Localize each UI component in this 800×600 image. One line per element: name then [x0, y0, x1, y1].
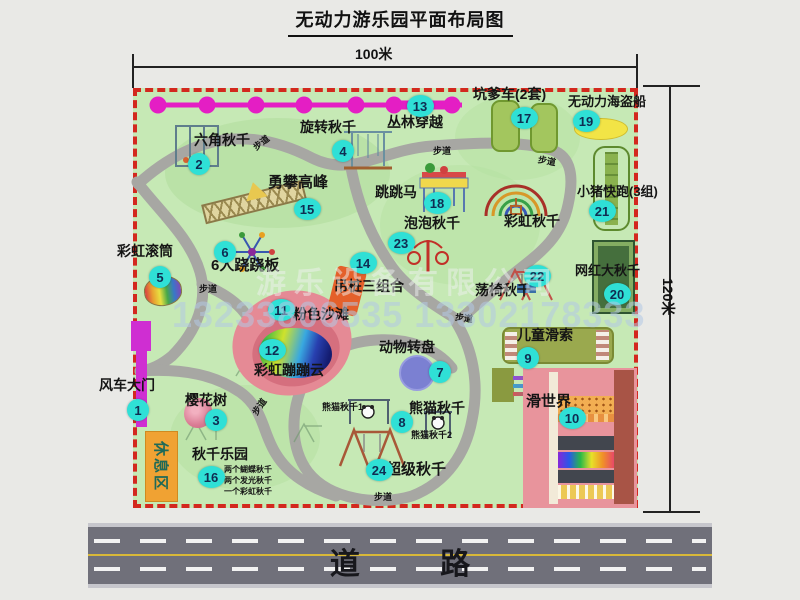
number-badge-17: 17	[511, 107, 538, 129]
map-label: 熊猫秋千	[409, 398, 465, 418]
map-label: 勇攀高峰	[268, 171, 328, 192]
map-label: 坑爹车(2套)	[473, 84, 546, 104]
map-label: 樱花树	[185, 390, 227, 410]
map-label: 两个发光秋千	[224, 475, 272, 486]
slide-world-right-strip	[614, 370, 634, 504]
park-layout-poster: 无动力游乐园平面布局图 100米 120米	[0, 0, 800, 600]
slide-world-stripe-rainbow	[558, 452, 614, 468]
number-badge-10: 10	[559, 407, 586, 429]
number-badge-7: 7	[429, 361, 451, 383]
number-badge-5: 5	[149, 266, 171, 288]
map-label: 步道	[374, 490, 392, 503]
map-label: 两个蝴蝶秋千	[224, 464, 272, 475]
slide-world-stripe-wavy	[558, 485, 614, 499]
map-label: 彩虹蹦蹦云	[254, 360, 324, 380]
map-label: 动物转盘	[379, 337, 435, 357]
number-badge-2: 2	[188, 153, 210, 175]
number-badge-4: 4	[332, 140, 354, 162]
map-label: 小猪快跑(3组)	[577, 181, 658, 200]
slide-world-stripe-dark-2	[558, 470, 614, 483]
map-label: 一个彩虹秋千	[224, 486, 272, 497]
map-label: 网红大秋千	[575, 260, 640, 279]
number-badge-14: 14	[350, 252, 377, 274]
number-badge-23: 23	[388, 232, 415, 254]
number-badge-6: 6	[214, 241, 236, 263]
road-curb-bottom	[88, 584, 712, 588]
dimension-right-tick-bottom	[643, 511, 700, 513]
map-label: 跳跳马	[375, 182, 417, 202]
map-label: 步道	[454, 310, 474, 325]
number-badge-19: 19	[573, 110, 600, 132]
title-wrap: 无动力游乐园平面布局图	[0, 6, 800, 37]
rest-area-box: 休息区	[145, 431, 178, 502]
map-label: 荡椅秋千	[475, 280, 531, 300]
map-label: 泡泡秋千	[404, 213, 460, 233]
dimension-top-tick-right	[636, 54, 638, 88]
map-label: 旋转秋千	[300, 117, 356, 137]
page-title: 无动力游乐园平面布局图	[288, 6, 513, 37]
number-badge-1: 1	[127, 399, 149, 421]
dimension-right-tick-top	[643, 85, 700, 87]
number-badge-11: 11	[268, 299, 295, 321]
map-label: 步道	[433, 144, 451, 157]
number-badge-16: 16	[198, 466, 225, 488]
number-badge-13: 13	[407, 95, 434, 117]
map-label: 彩虹滚筒	[117, 241, 173, 261]
number-badge-8: 8	[391, 411, 413, 433]
number-badge-15: 15	[294, 198, 321, 220]
map-label: 秋千乐园	[192, 444, 248, 464]
dimension-top-label: 100米	[355, 44, 392, 64]
zipline-ladder-left	[505, 332, 517, 360]
number-badge-20: 20	[604, 283, 631, 305]
dimension-top-tick-left	[132, 54, 134, 88]
map-label: 熊猫秋千1	[322, 400, 363, 413]
slide-world-stripe-dark-1	[558, 436, 614, 450]
dimension-right-label: 120米	[658, 278, 678, 315]
road-label: 道 路	[88, 539, 712, 583]
windmill-gate-top	[131, 321, 151, 351]
rest-area-label: 休息区	[151, 441, 172, 492]
map-label: 超级秋千	[386, 458, 446, 479]
number-badge-9: 9	[517, 347, 539, 369]
number-badge-12: 12	[259, 339, 286, 361]
zipline-ladder-right	[596, 330, 609, 360]
number-badge-24: 24	[366, 459, 393, 481]
dimension-top-line	[132, 66, 637, 68]
number-badge-18: 18	[424, 192, 451, 214]
map-label: 风车大门	[99, 375, 155, 395]
map-label: 粉色沙滩	[293, 304, 349, 324]
number-badge-21: 21	[589, 200, 616, 222]
zipline-left-block	[492, 368, 514, 402]
map-label: 彩虹秋千	[504, 211, 560, 231]
map-label: 儿童滑索	[517, 325, 573, 345]
map-label: 六角秋千	[194, 130, 250, 150]
number-badge-22: 22	[524, 265, 551, 287]
number-badge-3: 3	[205, 409, 227, 431]
map-label: 熊猫秋千2	[411, 428, 452, 441]
map-label: 无动力海盗船	[568, 91, 646, 110]
map-label: 步道	[199, 282, 217, 295]
map-label: 吊桩三组合	[334, 276, 404, 296]
road: 道 路	[88, 527, 712, 584]
